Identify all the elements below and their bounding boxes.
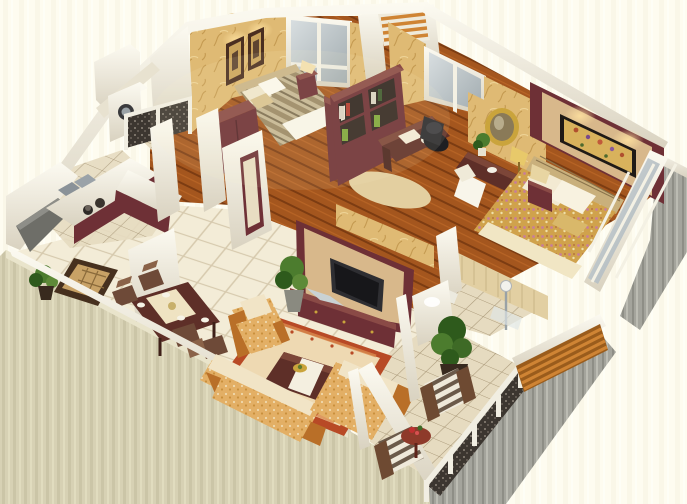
place-setting (201, 318, 209, 323)
flowers (409, 427, 415, 433)
centerpiece (168, 302, 176, 310)
place-setting (137, 303, 145, 308)
ambient-light (150, 50, 450, 190)
place-setting (162, 293, 170, 298)
floor-plan-render (0, 0, 687, 504)
place-setting (177, 316, 185, 321)
wash-basin (424, 297, 440, 307)
paper (487, 167, 497, 173)
stove-burner (95, 198, 105, 208)
floor-plan-svg (0, 0, 687, 504)
round-mirror (485, 108, 519, 146)
